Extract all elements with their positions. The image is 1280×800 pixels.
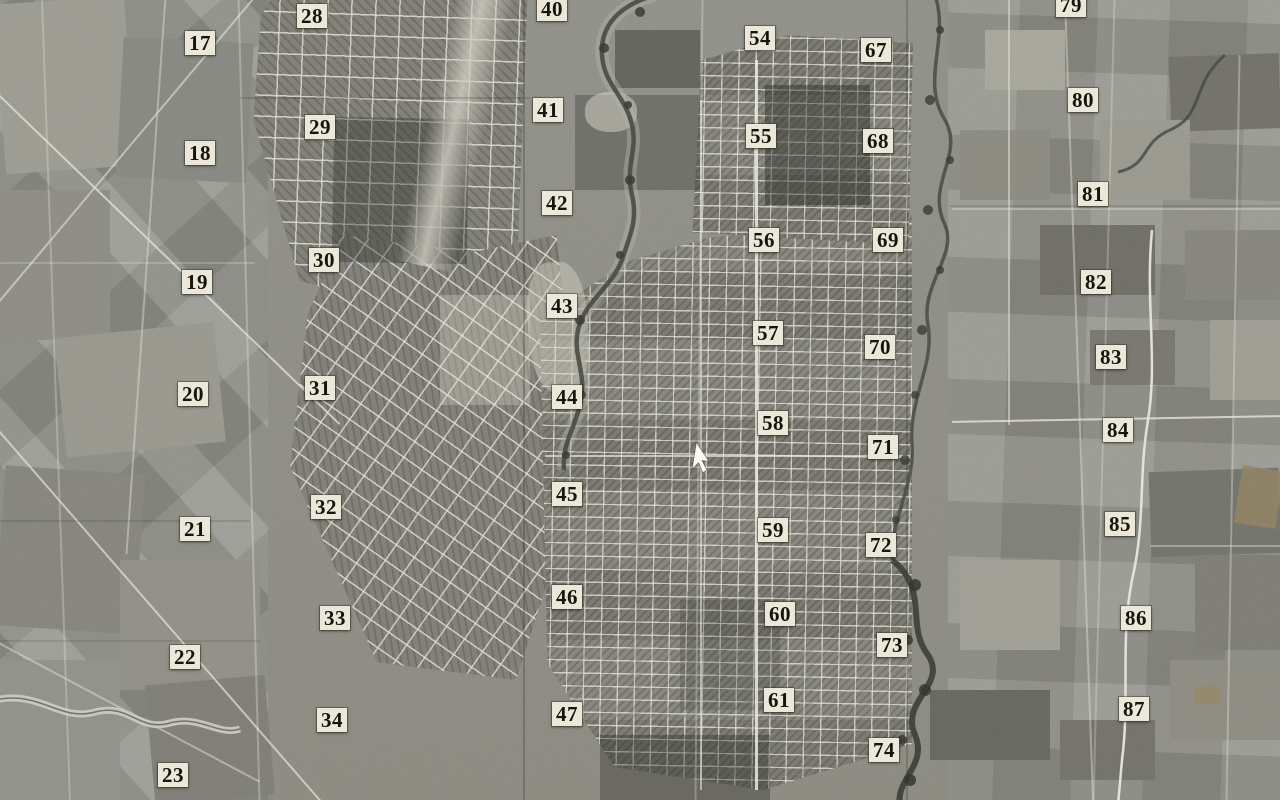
photo-seam bbox=[1092, 0, 1115, 800]
photo-index-label-41: 41 bbox=[533, 98, 563, 122]
creek-southwest bbox=[0, 698, 240, 730]
photo-seam bbox=[237, 0, 260, 800]
photo-seam bbox=[523, 0, 525, 800]
field-patch bbox=[1170, 660, 1280, 740]
photo-index-label-33: 33 bbox=[320, 606, 350, 630]
stream-northeast bbox=[1118, 55, 1225, 172]
railroad-corridor bbox=[396, 0, 518, 273]
creek-trees bbox=[562, 7, 645, 459]
film-grain-overlay bbox=[0, 0, 1280, 800]
road-line bbox=[1150, 545, 1280, 547]
road-line bbox=[125, 0, 166, 554]
waterways-overlay bbox=[0, 0, 1280, 800]
field-patch bbox=[930, 690, 1050, 760]
photo-index-label-79: 79 bbox=[1056, 0, 1086, 17]
photo-index-label-80: 80 bbox=[1068, 88, 1098, 112]
city-street bbox=[700, 100, 702, 790]
photo-index-label-45: 45 bbox=[552, 482, 582, 506]
photo-index-label-86: 86 bbox=[1121, 606, 1151, 630]
creek-north bbox=[564, 0, 655, 470]
field-patch bbox=[1040, 225, 1155, 295]
photo-index-label-71: 71 bbox=[868, 435, 898, 459]
photo-index-label-42: 42 bbox=[542, 191, 572, 215]
photo-index-label-58: 58 bbox=[758, 411, 788, 435]
farmland-west bbox=[0, 0, 268, 800]
cross-street bbox=[545, 455, 910, 457]
field-patch bbox=[1149, 468, 1280, 557]
photo-index-label-43: 43 bbox=[547, 294, 577, 318]
photo-seam bbox=[694, 0, 703, 800]
photo-index-label-87: 87 bbox=[1119, 697, 1149, 721]
field-patch bbox=[1185, 230, 1280, 300]
field-patch bbox=[116, 37, 253, 184]
road-line bbox=[0, 425, 323, 800]
river-trees bbox=[892, 26, 954, 524]
field-patch bbox=[0, 190, 110, 340]
field-patch bbox=[120, 560, 260, 690]
photo-index-label-28: 28 bbox=[297, 4, 327, 28]
photo-index-label-30: 30 bbox=[309, 248, 339, 272]
photo-index-label-70: 70 bbox=[865, 335, 895, 359]
photo-index-label-40: 40 bbox=[537, 0, 567, 21]
photo-index-label-31: 31 bbox=[305, 376, 335, 400]
road-line bbox=[1008, 0, 1010, 425]
photo-index-label-81: 81 bbox=[1078, 182, 1108, 206]
photo-index-label-17: 17 bbox=[185, 31, 215, 55]
dark-field-block bbox=[575, 95, 700, 190]
field-patch bbox=[1100, 120, 1190, 200]
photo-index-label-34: 34 bbox=[317, 708, 347, 732]
photo-seam bbox=[906, 0, 908, 800]
dark-field-block bbox=[765, 85, 870, 205]
dark-field-block bbox=[332, 117, 470, 264]
road-line bbox=[0, 90, 340, 425]
photo-index-label-44: 44 bbox=[552, 385, 582, 409]
photo-index-label-46: 46 bbox=[552, 585, 582, 609]
field-patch bbox=[54, 322, 226, 458]
photo-index-label-56: 56 bbox=[749, 228, 779, 252]
photo-index-label-20: 20 bbox=[178, 382, 208, 406]
photo-index-label-29: 29 bbox=[305, 115, 335, 139]
photo-scratch bbox=[1118, 230, 1152, 800]
road-line bbox=[0, 640, 260, 782]
field-patch bbox=[1195, 555, 1280, 650]
field-patch bbox=[0, 660, 120, 800]
road-line bbox=[1064, 0, 1094, 800]
photo-seam bbox=[0, 640, 260, 642]
field-patch bbox=[960, 560, 1060, 650]
mouse-pointer-icon bbox=[688, 441, 714, 475]
photo-index-label-69: 69 bbox=[873, 228, 903, 252]
field-patch bbox=[960, 130, 1050, 200]
road-line bbox=[1225, 55, 1240, 800]
photo-index-label-23: 23 bbox=[158, 763, 188, 787]
photo-index-label-61: 61 bbox=[764, 688, 794, 712]
photo-index-label-74: 74 bbox=[869, 738, 899, 762]
light-sand-flat bbox=[585, 92, 637, 132]
field-patch bbox=[1060, 720, 1155, 780]
field-patch bbox=[1169, 53, 1280, 132]
photo-index-label-54: 54 bbox=[745, 26, 775, 50]
photo-index-label-55: 55 bbox=[746, 124, 776, 148]
photo-index-label-19: 19 bbox=[182, 270, 212, 294]
photo-index-label-84: 84 bbox=[1103, 418, 1133, 442]
field-patch bbox=[1210, 320, 1280, 400]
dark-field-block bbox=[680, 600, 780, 710]
field-patch bbox=[145, 675, 275, 800]
photo-index-label-32: 32 bbox=[311, 495, 341, 519]
photo-label-layer: 1718192021222328293031323334404142434445… bbox=[0, 0, 1280, 800]
photo-damage-spot bbox=[1234, 465, 1280, 529]
photo-index-label-72: 72 bbox=[866, 533, 896, 557]
photo-index-label-22: 22 bbox=[170, 645, 200, 669]
river-east bbox=[892, 0, 951, 560]
street-grid-central-city bbox=[540, 215, 912, 790]
photo-index-label-18: 18 bbox=[185, 141, 215, 165]
field-patch bbox=[0, 465, 145, 634]
field-patch bbox=[1090, 330, 1175, 385]
river-southeast bbox=[892, 560, 933, 800]
light-field-block bbox=[440, 295, 530, 405]
road-line bbox=[41, 0, 70, 800]
photo-index-label-85: 85 bbox=[1105, 512, 1135, 536]
field-patch bbox=[985, 30, 1065, 90]
photo-index-label-21: 21 bbox=[180, 517, 210, 541]
photo-damage-spot bbox=[1193, 685, 1221, 706]
photo-seam bbox=[0, 262, 255, 264]
photo-index-label-67: 67 bbox=[861, 38, 891, 62]
field-patch bbox=[0, 0, 136, 174]
photo-index-label-83: 83 bbox=[1096, 345, 1126, 369]
dark-field-block bbox=[615, 30, 700, 88]
light-sand-flat bbox=[524, 260, 593, 394]
photo-index-label-47: 47 bbox=[552, 702, 582, 726]
road-line bbox=[0, 0, 267, 306]
dark-field-block bbox=[600, 735, 770, 800]
photo-index-label-59: 59 bbox=[758, 518, 788, 542]
photo-seam bbox=[0, 520, 250, 522]
photo-index-label-60: 60 bbox=[765, 602, 795, 626]
street-grid-southwest-district bbox=[290, 235, 580, 680]
street-grid-north-city bbox=[688, 35, 913, 245]
photo-seam bbox=[950, 205, 1280, 207]
road-line bbox=[952, 208, 1280, 210]
photo-index-label-68: 68 bbox=[863, 129, 893, 153]
street-grid-northwest-town bbox=[250, 0, 528, 310]
photo-index-label-73: 73 bbox=[877, 633, 907, 657]
road-line bbox=[952, 415, 1280, 423]
farmland-east bbox=[948, 0, 1280, 800]
photo-index-label-82: 82 bbox=[1081, 270, 1111, 294]
photo-seam bbox=[240, 97, 530, 99]
photo-index-label-57: 57 bbox=[753, 321, 783, 345]
main-street bbox=[755, 60, 758, 790]
aerial-photo-mosaic[interactable]: 1718192021222328293031323334404142434445… bbox=[0, 0, 1280, 800]
